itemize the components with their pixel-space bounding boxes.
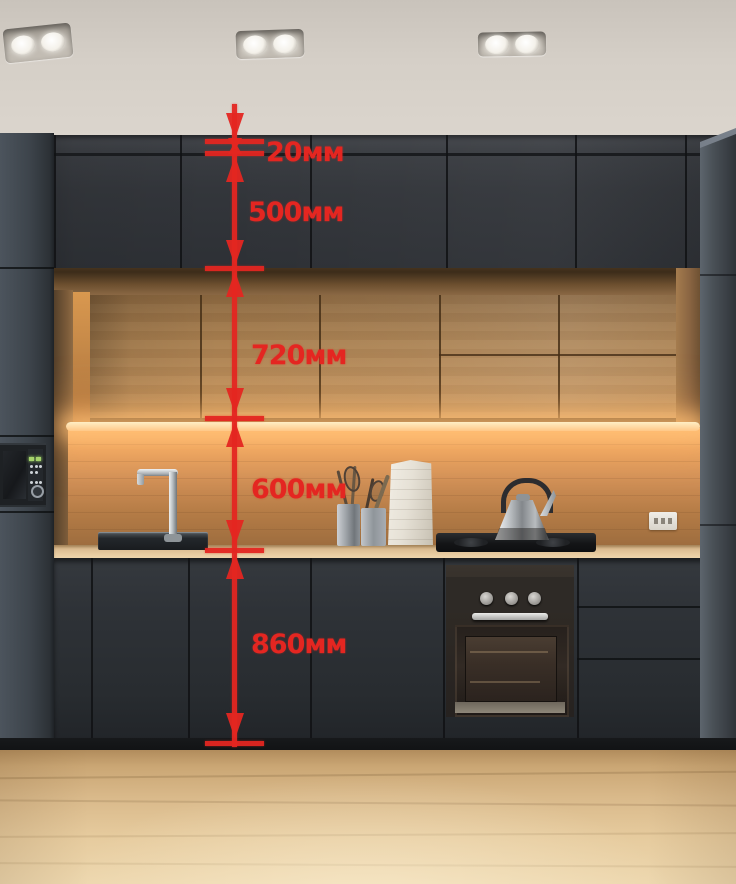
kitchen-sink (98, 532, 208, 550)
drawer-seam (577, 606, 706, 608)
dimension-arrow-up (226, 421, 244, 447)
cabinet-panel-seam (0, 435, 54, 437)
wood-wall-cabinet-doors (90, 295, 676, 420)
dimension-arrow-up (226, 156, 244, 182)
kitchen-photo: 20мм 500мм 720мм 600мм 860мм (0, 0, 736, 884)
microwave-button (35, 471, 38, 474)
dimension-label-720mm: 720мм (251, 340, 347, 371)
wood-floor (0, 750, 736, 884)
dimension-label-20mm: 20мм (266, 137, 344, 168)
microwave-button (30, 471, 33, 474)
recessed-ceiling-light (2, 23, 73, 64)
dimension-tick (205, 741, 264, 746)
faucet-aerator (137, 474, 144, 485)
dimension-arrow-down (226, 713, 244, 739)
cabinet-panel-seam (446, 135, 448, 270)
cabinet-groove (0, 153, 736, 156)
dimension-label-500mm: 500мм (248, 197, 344, 228)
outlet-slot (661, 518, 665, 524)
outlet-slot (668, 518, 672, 524)
oven-rack-reflection (470, 651, 548, 653)
built-in-oven (446, 565, 574, 717)
microwave-window (3, 451, 26, 499)
microwave-button (30, 465, 33, 468)
cabinet-panel-seam (700, 274, 736, 276)
cabinet-panel-seam (54, 135, 56, 270)
oven-bottom-vent (455, 702, 565, 713)
oven-handle (472, 613, 548, 620)
cabinet-panel-seam (0, 511, 54, 513)
outlet-slot (654, 518, 658, 524)
recessed-ceiling-light (236, 29, 305, 59)
utensil-crock (337, 504, 360, 546)
under-cabinet-light (66, 422, 700, 431)
burner (454, 538, 488, 547)
cabinet-panel-seam (575, 135, 577, 270)
dimension-arrow-up (226, 271, 244, 297)
dimension-arrow-down (226, 113, 244, 139)
oven-rack-reflection (470, 681, 540, 683)
microwave-button (35, 481, 38, 484)
left-tall-cabinet (0, 133, 54, 758)
dimension-arrow-down (228, 138, 242, 150)
microwave-led (29, 457, 34, 461)
cabinet-panel-seam (577, 558, 579, 738)
microwave-button (39, 465, 42, 468)
dimension-label-600mm: 600мм (251, 474, 347, 505)
cabinet-panel-seam (180, 135, 182, 270)
cabinet-panel-seam (443, 558, 445, 738)
paper-creases (388, 460, 433, 545)
drawer-seam (577, 658, 706, 660)
niche-frame-top (54, 268, 706, 295)
door-horizontal-seam (439, 354, 676, 356)
cabinet-panel-seam (685, 135, 687, 270)
microwave-button (39, 481, 42, 484)
paper-bag (388, 460, 433, 545)
light-bulb-icon (484, 35, 508, 54)
upper-cabinets (0, 135, 736, 270)
microwave-button (30, 481, 33, 484)
dimension-arrow-up (226, 553, 244, 579)
faucet-riser (169, 472, 177, 538)
dimension-label-860mm: 860мм (251, 629, 347, 660)
kettle-lid (516, 494, 530, 501)
cabinet-panel-seam (700, 524, 736, 526)
floor-sheen (0, 750, 736, 884)
power-outlet (649, 512, 677, 530)
cabinet-panel-seam (188, 558, 190, 738)
dimension-arrow-down (226, 240, 244, 266)
oven-door-glass (465, 636, 557, 702)
utensil-crock (361, 508, 386, 546)
microwave-led (36, 457, 41, 461)
oven-knob (528, 592, 541, 605)
base-cabinets (54, 558, 706, 738)
dimension-arrow-down (226, 520, 244, 546)
built-in-microwave (0, 443, 46, 507)
door-seam (558, 295, 560, 420)
light-bulb-icon (10, 34, 36, 55)
microwave-button (35, 465, 38, 468)
recessed-ceiling-light (478, 31, 546, 56)
kettle (492, 478, 556, 542)
ceiling (0, 0, 736, 150)
oven-knob (505, 592, 518, 605)
right-corner-cabinet (700, 134, 736, 758)
microwave-dial (31, 485, 44, 498)
light-bulb-icon (515, 34, 539, 53)
door-seam (200, 295, 202, 420)
dimension-arrow-down (226, 388, 244, 414)
light-bulb-icon (40, 31, 66, 52)
faucet-base (164, 534, 182, 542)
light-bulb-icon (242, 35, 267, 55)
cabinet-panel-seam (0, 267, 54, 269)
kettle-shadow-band (492, 528, 552, 540)
microwave-control-panel (28, 449, 43, 501)
cabinet-panel-seam (91, 558, 93, 738)
light-bulb-icon (273, 34, 298, 54)
oven-knob (480, 592, 493, 605)
wood-grain (90, 295, 676, 420)
door-seam (439, 295, 441, 420)
